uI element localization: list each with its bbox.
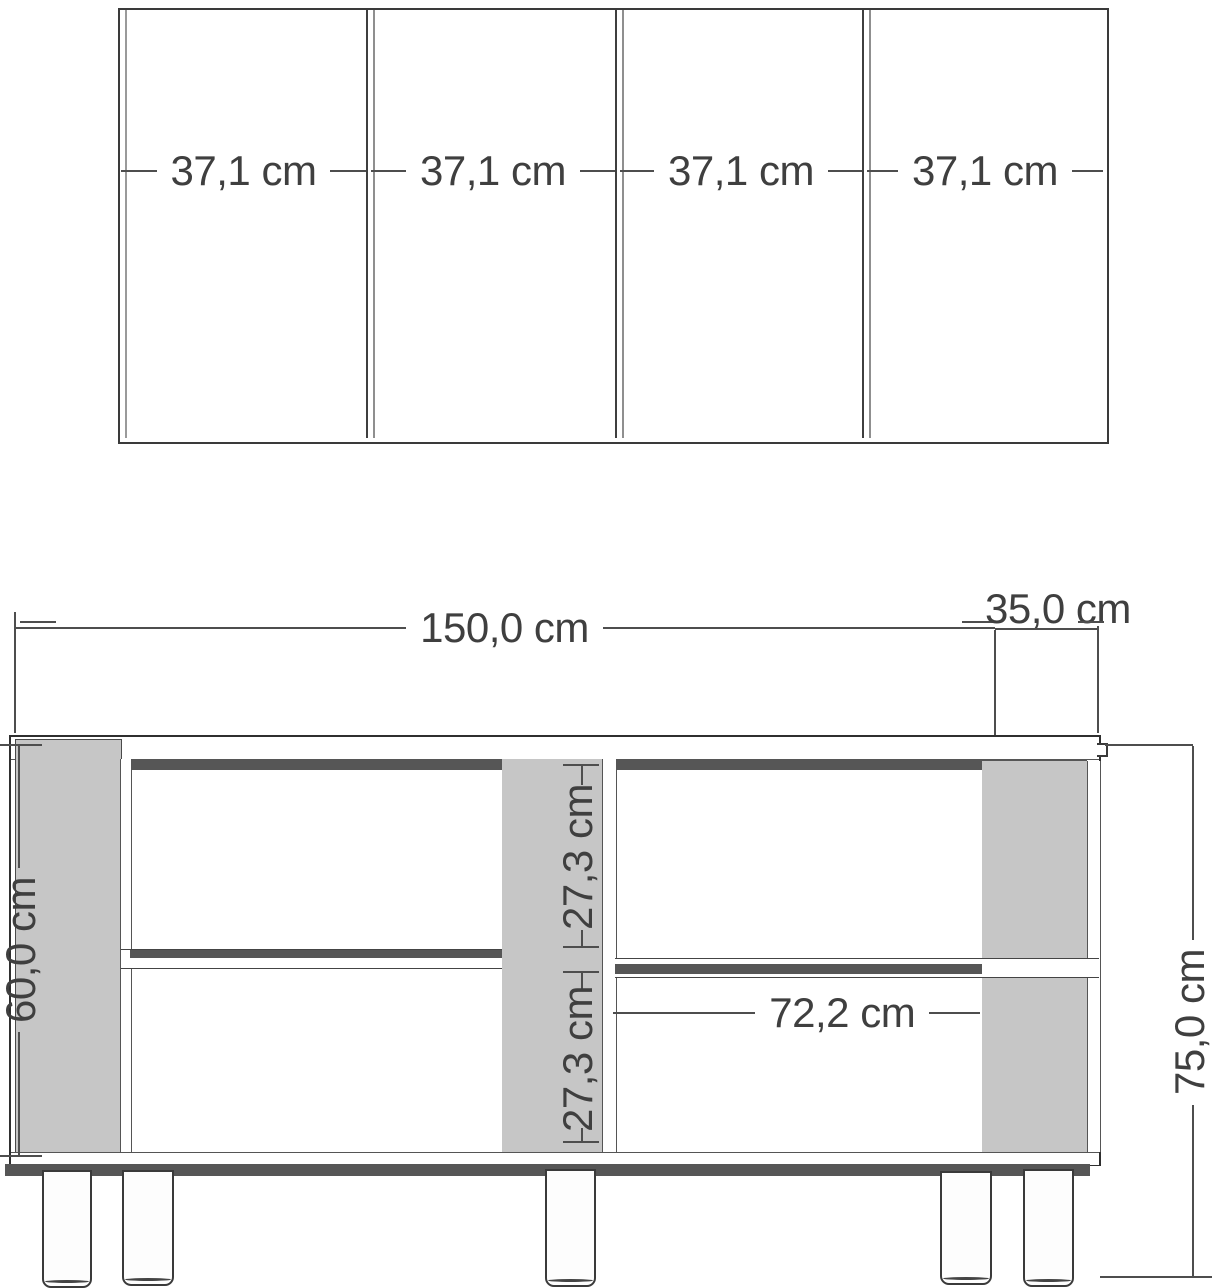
overall-width-label: 150,0 cm [406, 607, 603, 649]
dimension-line [828, 170, 862, 172]
dimension-line [121, 170, 157, 172]
top-view-panel1-dimension: 37,1 cm [121, 147, 366, 195]
dimension-line [867, 170, 898, 172]
dimension-line [580, 170, 615, 172]
total-height-dim-line-upper [1192, 746, 1194, 940]
dimension-line [613, 1012, 755, 1014]
panel3-width-label: 37,1 cm [654, 150, 828, 192]
height-dim-line-upper [18, 744, 20, 868]
leg-far-left [42, 1170, 92, 1288]
upper-shelf-dim-line-top [581, 765, 583, 785]
height-dim-line-lower [18, 1032, 20, 1157]
left-shelf-shadow [130, 950, 502, 958]
leg-center [545, 1169, 596, 1287]
dimension-line [603, 627, 995, 629]
total-height-extension-top [1105, 744, 1193, 746]
top-view-divider-3 [862, 10, 871, 438]
technical-drawing-canvas: 37,1 cm 37,1 cm 37,1 cm 37,1 cm 150,0 cm… [0, 0, 1212, 1288]
top-view-panel4-dimension: 37,1 cm [867, 147, 1103, 195]
panel4-width-label: 37,1 cm [898, 150, 1072, 192]
dimension-line [14, 627, 406, 629]
depth-dim-tick [1078, 621, 1104, 623]
right-panel-front-edge [1087, 761, 1101, 1152]
body-height-label: 60,0 cm [0, 877, 42, 1023]
top-view-divider-2 [615, 10, 624, 438]
dimension-line [620, 170, 654, 172]
leg-foot [1026, 1279, 1071, 1282]
cabinet-top-panel [11, 737, 1099, 760]
height-dim-tick-bottom [0, 1155, 42, 1157]
leg-foot [548, 1279, 593, 1282]
inner-width-label: 72,2 cm [755, 992, 929, 1034]
upper-shelf-label: 27,3 cm [557, 784, 599, 930]
top-view-outline [118, 8, 1109, 444]
dimension-line [1072, 170, 1103, 172]
panel2-width-label: 37,1 cm [406, 150, 580, 192]
top-view-panel3-dimension: 37,1 cm [620, 147, 862, 195]
leg-right [940, 1171, 992, 1285]
upper-shelf-dim-line-bottom [581, 930, 583, 948]
dimension-line [330, 170, 366, 172]
top-view-divider-1 [366, 10, 375, 438]
top-view-panel2-dimension: 37,1 cm [371, 147, 615, 195]
total-height-extension-bottom [1100, 1276, 1212, 1278]
height-dim-tick-top [0, 744, 42, 746]
depth-dim-extension-left [994, 630, 996, 735]
leg-foot [45, 1280, 89, 1283]
depth-label: 35,0 cm [985, 588, 1115, 630]
total-height-label: 75,0 cm [1169, 949, 1211, 1095]
overall-width-dimension: 150,0 cm [14, 604, 995, 652]
lower-shelf-label: 27,3 cm [557, 986, 599, 1132]
divider-front-edge [602, 759, 617, 1152]
dimension-line [929, 1012, 980, 1014]
panel1-width-label: 37,1 cm [157, 150, 331, 192]
leg-foot [943, 1277, 989, 1280]
dimension-line [371, 170, 406, 172]
leg-left [122, 1170, 174, 1286]
top-view-left-double-line [125, 10, 127, 438]
right-shelf-shadow [615, 964, 982, 974]
inner-width-dimension: 72,2 cm [613, 990, 980, 1036]
depth-dim-extension-right [1097, 626, 1099, 733]
total-height-dim-line-lower [1192, 1105, 1194, 1277]
leg-foot [125, 1278, 171, 1281]
depth-dim-line [995, 628, 1098, 630]
leg-far-right [1023, 1169, 1074, 1287]
